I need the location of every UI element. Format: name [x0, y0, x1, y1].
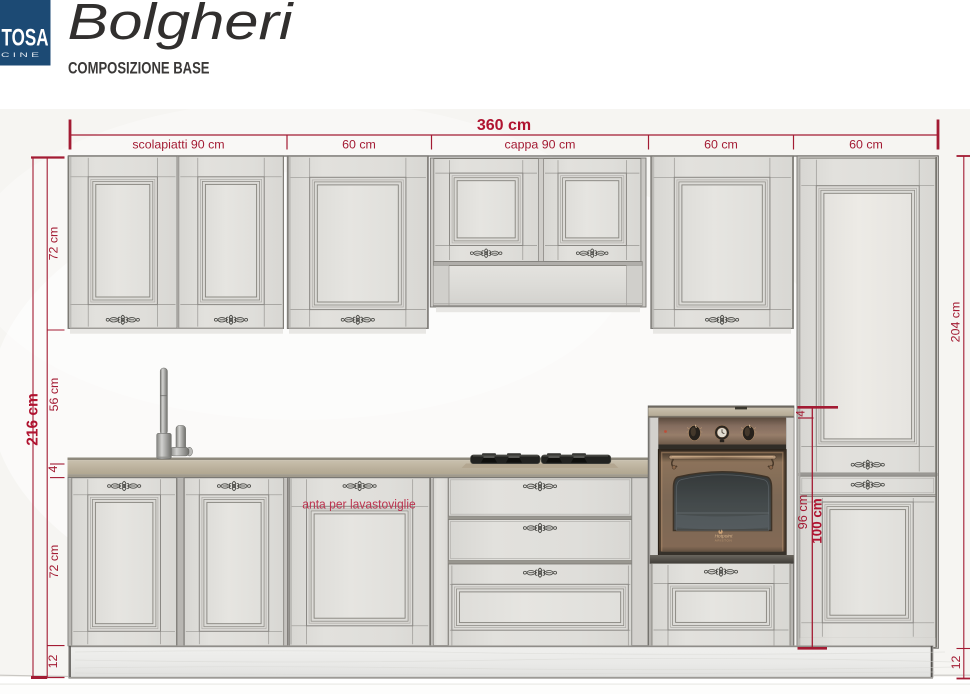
svg-text:C I N E: C I N E [1, 52, 40, 59]
svg-text:4: 4 [46, 465, 60, 472]
svg-text:12: 12 [46, 655, 60, 669]
svg-text:TOSA: TOSA [2, 25, 49, 52]
svg-text:scolapiatti 90 cm: scolapiatti 90 cm [132, 138, 224, 152]
svg-text:216 cm: 216 cm [25, 393, 42, 446]
svg-text:360 cm: 360 cm [477, 117, 531, 134]
svg-text:cappa 90 cm: cappa 90 cm [505, 138, 576, 152]
svg-text:72 cm: 72 cm [47, 227, 61, 261]
svg-text:60 cm: 60 cm [849, 138, 883, 152]
svg-text:COMPOSIZIONE BASE: COMPOSIZIONE BASE [68, 60, 210, 78]
svg-text:anta per lavastoviglie: anta per lavastoviglie [302, 497, 416, 512]
svg-text:4: 4 [796, 410, 808, 417]
svg-text:12: 12 [949, 656, 963, 670]
svg-text:60 cm: 60 cm [342, 138, 376, 152]
svg-text:72 cm: 72 cm [47, 545, 61, 579]
svg-text:204 cm: 204 cm [949, 302, 963, 343]
svg-text:96 cm: 96 cm [795, 495, 810, 530]
svg-text:56 cm: 56 cm [47, 378, 61, 412]
svg-text:100 cm: 100 cm [810, 498, 825, 544]
svg-text:60 cm: 60 cm [704, 138, 738, 152]
svg-text:Bolgheri: Bolgheri [68, 0, 295, 50]
